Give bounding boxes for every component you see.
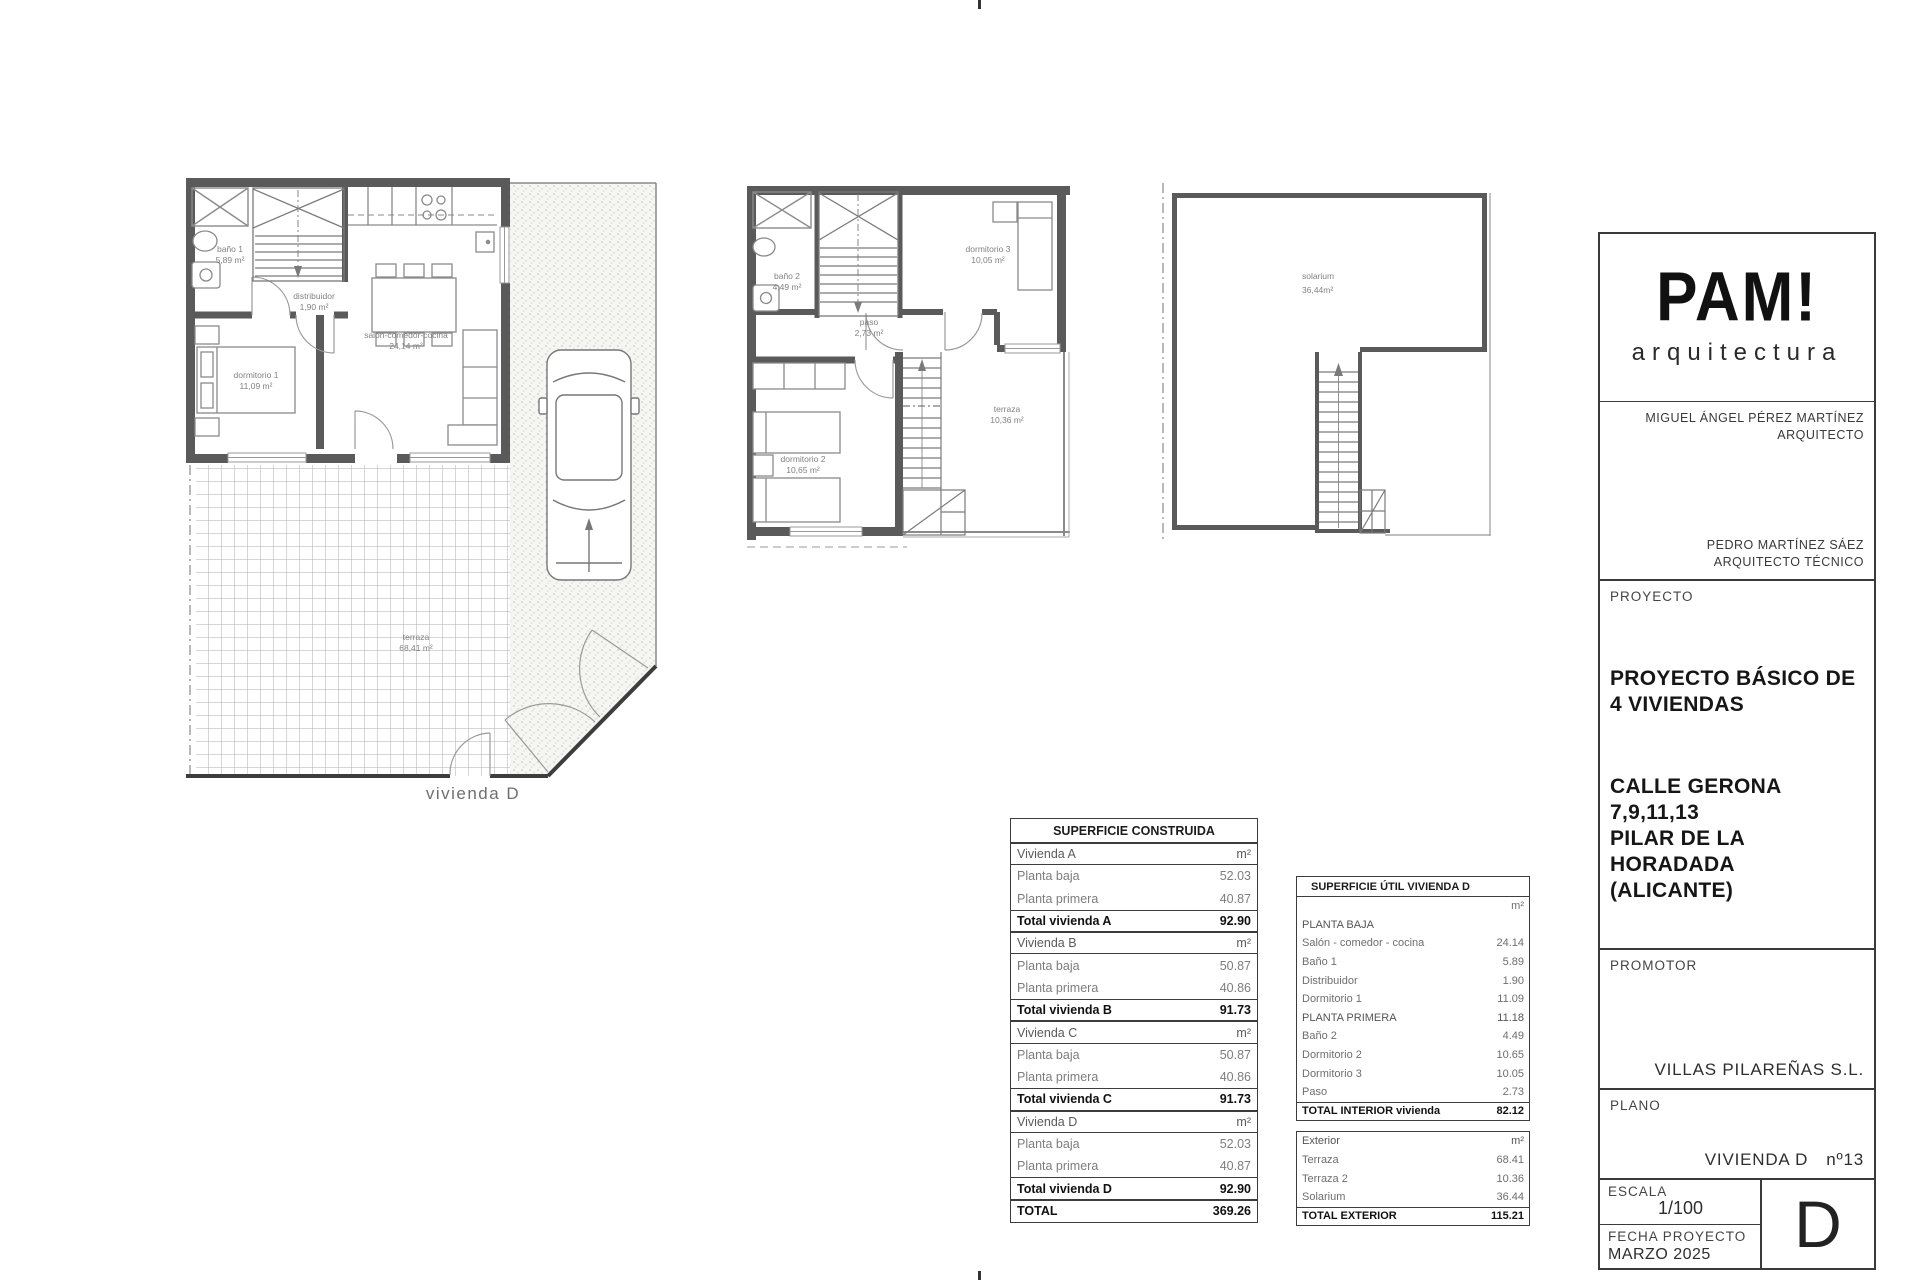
table-row: Total vivienda D92.90	[1011, 1177, 1257, 1199]
wardrobe	[753, 363, 845, 389]
parapet	[903, 352, 1070, 536]
room-area: 4,49 m²	[773, 282, 802, 292]
room-label: baño 2	[774, 271, 800, 281]
exterior-surfaces-box: Exteriorm² Terraza68.41 Terraza 210.36 S…	[1296, 1131, 1530, 1226]
sheet-name-value: VIVIENDA Dnº13	[1610, 1150, 1864, 1170]
table-row: Vivienda Bm²	[1011, 932, 1257, 954]
table-row: Dormitorio 210.65	[1297, 1046, 1529, 1065]
terrace-paving	[196, 465, 510, 776]
wall	[817, 192, 900, 318]
superficie-util-table: SUPERFICIE ÚTIL VIVIENDA D m² PLANTA BAJ…	[1296, 876, 1530, 1226]
table-title: SUPERFICIE CONSTRUIDA	[1011, 819, 1257, 843]
roof-edge	[1385, 193, 1490, 536]
logo-box: PAM! arquitectura	[1600, 234, 1874, 402]
car	[539, 350, 639, 580]
room-label: terraza	[403, 632, 430, 642]
developer-label: PROMOTOR	[1610, 958, 1864, 973]
sheet-letter: D	[1762, 1180, 1874, 1268]
table-row: Salón - comedor - cocina24.14	[1297, 934, 1529, 953]
room-area: 2,73 m²	[855, 328, 884, 338]
table-row: Dormitorio 111.09	[1297, 990, 1529, 1009]
scale-label: ESCALA	[1608, 1184, 1752, 1199]
scale-box: ESCALA 1/100	[1600, 1180, 1760, 1225]
shower	[753, 192, 811, 228]
room-label: dormitorio 2	[781, 454, 826, 464]
table-row: Planta baja52.03	[1011, 865, 1257, 887]
plan-caption: vivienda D	[426, 784, 520, 803]
sink	[193, 231, 217, 251]
table-row: Vivienda Am²	[1011, 843, 1257, 865]
ground-floor-plan: baño 1 5,89 m² distribuidor 1,90 m² dorm…	[186, 178, 656, 803]
table-row: Planta baja50.87	[1011, 954, 1257, 976]
kitchen-counter	[348, 187, 497, 252]
room-area: 10,05 m²	[971, 255, 1005, 265]
room-area: 68,41 m²	[399, 643, 433, 653]
first-floor-plan: baño 2 4,49 m² paso 2,73 m² dormitorio 3…	[747, 186, 1070, 547]
table-row: Planta primera40.87	[1011, 888, 1257, 910]
table-row: TOTAL EXTERIOR115.21	[1297, 1207, 1529, 1226]
project-label: PROYECTO	[1610, 589, 1864, 604]
table-row: Planta primera40.86	[1011, 977, 1257, 999]
room-label: dormitorio 3	[966, 244, 1011, 254]
room-area: 10,36 m²	[990, 415, 1024, 425]
table-row: Planta baja52.03	[1011, 1133, 1257, 1155]
room-label: salón-comedor-cocina	[364, 330, 448, 340]
table-row: m²	[1297, 897, 1529, 916]
table-row: Baño 15.89	[1297, 953, 1529, 972]
table-title: SUPERFICIE ÚTIL VIVIENDA D	[1297, 877, 1529, 897]
staircase	[1319, 363, 1385, 533]
title-block: PAM! arquitectura MIGUEL ÁNGEL PÉREZ MAR…	[1598, 232, 1876, 1270]
table-row: Total vivienda B91.73	[1011, 999, 1257, 1021]
table-row: TOTAL369.26	[1011, 1200, 1257, 1222]
architect-role: ARQUITECTO	[1610, 427, 1864, 444]
developer-name: VILLAS PILAREÑAS S.L.	[1610, 1060, 1864, 1080]
table-row: PLANTA PRIMERA11.18	[1297, 1009, 1529, 1028]
project-address: CALLE GERONA 7,9,11,13 PILAR DE LA HORAD…	[1610, 774, 1864, 904]
table-row: Baño 24.49	[1297, 1027, 1529, 1046]
developer-box: PROMOTOR VILLAS PILAREÑAS S.L.	[1600, 950, 1874, 1090]
table-row: Solarium36.44	[1297, 1188, 1529, 1207]
date-box: FECHA PROYECTO MARZO 2025	[1600, 1225, 1760, 1268]
table-row: Planta baja50.87	[1011, 1044, 1257, 1066]
room-label: distribuidor	[293, 291, 335, 301]
table-row: Terraza68.41	[1297, 1151, 1529, 1170]
project-box: PROYECTO PROYECTO BÁSICO DE 4 VIVIENDAS …	[1600, 581, 1874, 950]
room-area: 24,14 m²	[389, 341, 423, 351]
sofa	[448, 330, 497, 445]
room-area: 10,65 m²	[786, 465, 820, 475]
date-label: FECHA PROYECTO	[1608, 1229, 1752, 1244]
room-area: 1,90 m²	[300, 302, 329, 312]
table-row: Exteriorm²	[1297, 1132, 1529, 1151]
room-area: 5,89 m²	[216, 255, 245, 265]
solarium-plan: solarium 36,44m²	[1163, 183, 1490, 543]
logo-subtitle: arquitectura	[1632, 339, 1843, 367]
table-row: Terraza 210.36	[1297, 1169, 1529, 1188]
staircase	[253, 188, 344, 281]
room-label: dormitorio 1	[234, 370, 279, 380]
room-label: solarium	[1302, 271, 1334, 281]
scale-date-column: ESCALA 1/100 FECHA PROYECTO MARZO 2025	[1600, 1180, 1762, 1268]
table-row: Dormitorio 310.05	[1297, 1064, 1529, 1083]
toilet	[192, 262, 220, 288]
technical-architect-block: PEDRO MARTÍNEZ SÁEZ ARQUITECTO TÉCNICO	[1610, 537, 1864, 571]
table-row: Planta primera40.86	[1011, 1066, 1257, 1088]
table-row: PLANTA BAJA	[1297, 916, 1529, 935]
project-title: PROYECTO BÁSICO DE 4 VIVIENDAS	[1610, 666, 1864, 718]
plan-sheet: { "plans": { "ground": { "caption": "viv…	[0, 0, 1920, 1280]
sheet-name-box: PLANO VIVIENDA Dnº13	[1600, 1090, 1874, 1180]
room-area: 36,44m²	[1302, 285, 1333, 295]
shower	[192, 188, 248, 226]
table-row: Total vivienda C91.73	[1011, 1088, 1257, 1110]
technical-architect-name: PEDRO MARTÍNEZ SÁEZ	[1610, 537, 1864, 554]
staircase	[819, 192, 898, 316]
technical-architect-role: ARQUITECTO TÉCNICO	[1610, 554, 1864, 571]
table-row: Vivienda Dm²	[1011, 1111, 1257, 1133]
table-row: Distribuidor1.90	[1297, 971, 1529, 990]
table-row: Total vivienda A92.90	[1011, 910, 1257, 932]
authors-box: MIGUEL ÁNGEL PÉREZ MARTÍNEZ ARQUITECTO P…	[1600, 402, 1874, 582]
table-row: Vivienda Cm²	[1011, 1021, 1257, 1043]
room-label: terraza	[994, 404, 1021, 414]
interior-surfaces-box: SUPERFICIE ÚTIL VIVIENDA D m² PLANTA BAJ…	[1296, 876, 1530, 1121]
date-value: MARZO 2025	[1608, 1246, 1752, 1264]
architect-name-block: MIGUEL ÁNGEL PÉREZ MARTÍNEZ ARQUITECTO	[1610, 410, 1864, 444]
logo: PAM!	[1656, 264, 1818, 333]
room-label: baño 1	[217, 244, 243, 254]
superficie-construida-table: SUPERFICIE CONSTRUIDA Vivienda Am² Plant…	[1010, 818, 1258, 1223]
parapet	[903, 352, 1069, 537]
terrace-staircase	[903, 352, 965, 535]
architect-name: MIGUEL ÁNGEL PÉREZ MARTÍNEZ	[1610, 410, 1864, 427]
table-row: Paso2.73	[1297, 1083, 1529, 1102]
scale-value: 1/100	[1658, 1198, 1703, 1219]
sink	[753, 238, 775, 256]
wall	[1172, 193, 1487, 530]
scale-date-sheet-row: ESCALA 1/100 FECHA PROYECTO MARZO 2025 D	[1600, 1180, 1874, 1268]
table-row: TOTAL INTERIOR vivienda82.12	[1297, 1102, 1529, 1121]
room-area: 11,09 m²	[240, 381, 273, 391]
table-row: Planta primera40.87	[1011, 1155, 1257, 1177]
sheet-name-label: PLANO	[1610, 1098, 1864, 1113]
room-label: paso	[860, 317, 879, 327]
